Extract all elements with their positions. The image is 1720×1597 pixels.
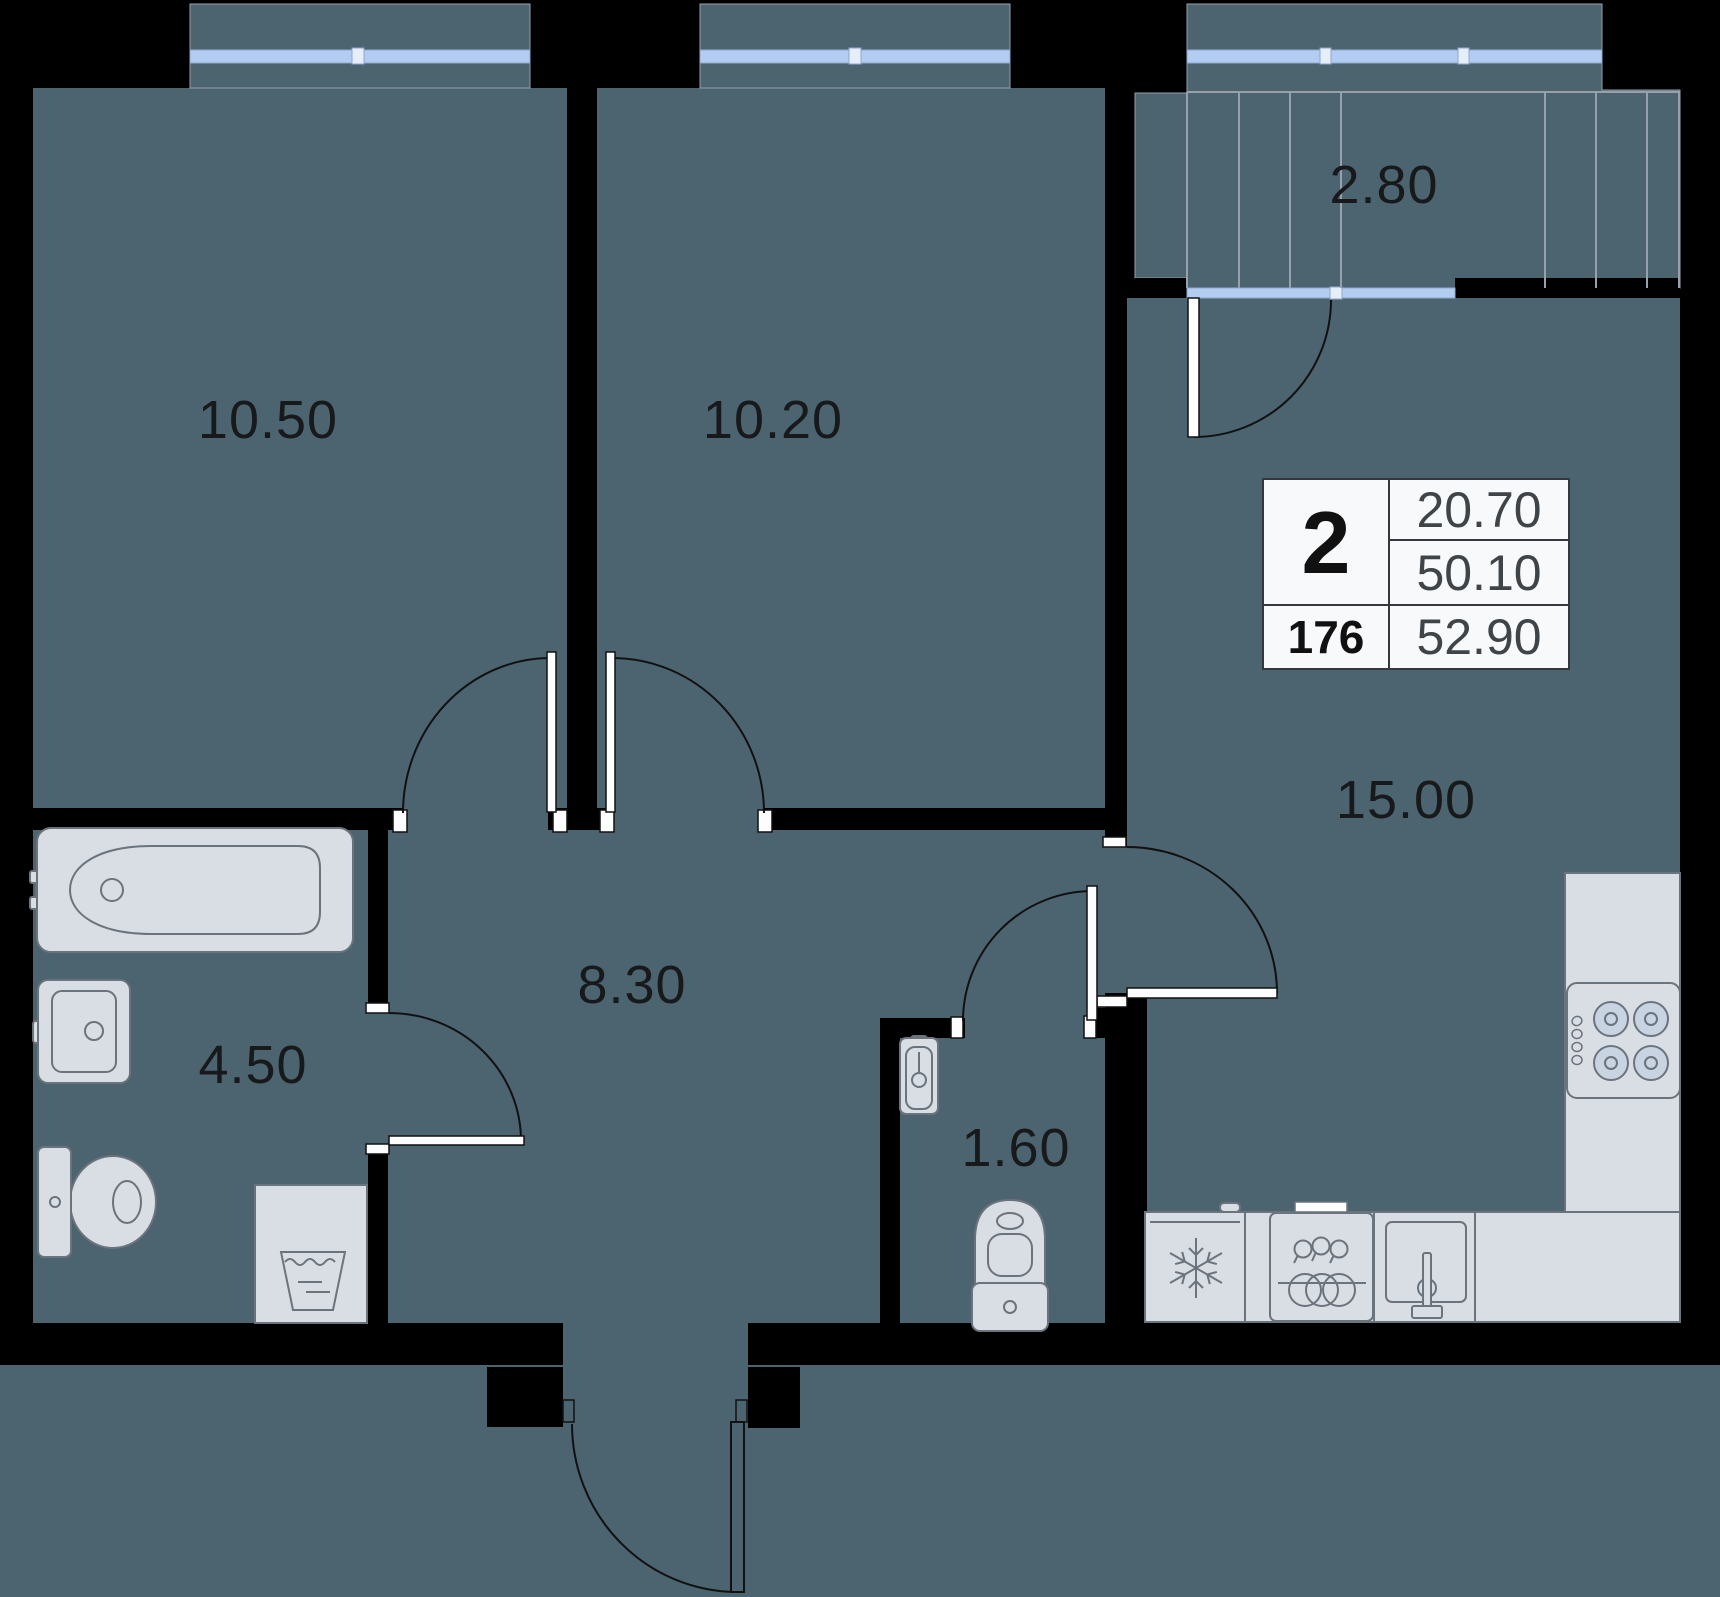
door-leaf-bedroom-1 <box>547 652 556 812</box>
washbasin <box>33 980 130 1083</box>
living-area-value: 20.70 <box>1390 480 1568 541</box>
washing-machine <box>255 1185 367 1323</box>
room-label-wc: 1.60 <box>961 1117 1070 1179</box>
fridge <box>1145 1212 1245 1322</box>
balcony-niche <box>1135 93 1187 278</box>
rooms-count: 2 <box>1264 480 1390 606</box>
room-label-kitchen-living: 15.00 <box>1336 769 1476 831</box>
room-label-hallway: 8.30 <box>577 954 686 1016</box>
room-balcony-floor <box>1187 4 1680 288</box>
room-label-bedroom-2: 10.20 <box>703 389 843 451</box>
room-label-bedroom-1: 10.50 <box>198 389 338 451</box>
balcony-window-glass <box>1187 50 1602 63</box>
balcony-inner-window-glass <box>1187 288 1455 298</box>
toilet <box>38 1147 156 1257</box>
door-leaf-bedroom-2 <box>606 652 615 812</box>
kitchen-sink <box>1374 1212 1475 1322</box>
stove <box>1567 983 1680 1098</box>
unit-info-table: 2 20.70 50.10 176 52.90 <box>1262 478 1570 670</box>
floor-plan: 10.50 10.20 2.80 15.00 4.50 8.30 1.60 2 … <box>0 0 1720 1597</box>
total-area-value: 52.90 <box>1390 606 1568 668</box>
exterior-area <box>0 1365 1720 1597</box>
wc-toilet <box>972 1200 1048 1331</box>
unit-number: 176 <box>1264 604 1390 668</box>
door-leaf-wc <box>1087 886 1097 1020</box>
window-recess-1 <box>190 4 530 88</box>
room-label-bathroom: 4.50 <box>198 1034 307 1096</box>
door-leaf-balcony <box>1188 298 1199 437</box>
window-recess-2 <box>700 4 1010 88</box>
room-label-balcony: 2.80 <box>1329 154 1438 216</box>
apartment-area-value: 50.10 <box>1390 541 1568 606</box>
wc-washbasin <box>900 1036 938 1114</box>
door-leaf-entrance <box>731 1422 744 1592</box>
bathtub <box>30 828 353 952</box>
dishwasher <box>1270 1213 1373 1321</box>
door-leaf-kitchen <box>1127 988 1277 998</box>
door-leaf-bathroom <box>389 1136 524 1145</box>
room-bedroom-2-floor <box>597 88 1105 808</box>
